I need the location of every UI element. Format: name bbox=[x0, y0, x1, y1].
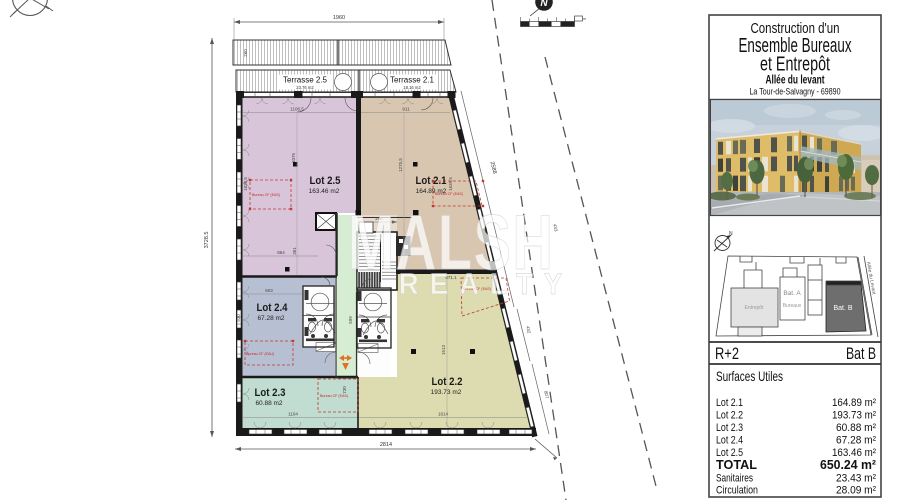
svg-text:1639,5: 1639,5 bbox=[448, 177, 453, 191]
svg-text:TOTAL: TOTAL bbox=[716, 457, 757, 472]
svg-text:1614: 1614 bbox=[438, 412, 449, 417]
svg-text:Lot 2.1: Lot 2.1 bbox=[416, 175, 447, 187]
svg-text:Bat. A: Bat. A bbox=[783, 290, 801, 297]
svg-text:193.73 m2: 193.73 m2 bbox=[431, 389, 462, 396]
svg-text:Lot 2.1: Lot 2.1 bbox=[716, 397, 743, 409]
svg-text:1275,5: 1275,5 bbox=[398, 158, 403, 172]
svg-text:1620,5: 1620,5 bbox=[243, 177, 248, 191]
svg-text:Lot 2.3: Lot 2.3 bbox=[255, 387, 286, 399]
svg-text:N: N bbox=[540, 0, 548, 9]
svg-text:Terrasse 2.1: Terrasse 2.1 bbox=[390, 76, 435, 85]
svg-text:Bureaux: Bureaux bbox=[783, 303, 802, 309]
svg-text:1513: 1513 bbox=[441, 344, 446, 355]
svg-text:1075: 1075 bbox=[291, 152, 296, 163]
svg-text:Entrepôt: Entrepôt bbox=[745, 305, 765, 311]
svg-text:Bat. B: Bat. B bbox=[833, 305, 852, 312]
svg-text:Lot 2.2: Lot 2.2 bbox=[432, 376, 463, 388]
svg-text:930: 930 bbox=[236, 314, 241, 322]
svg-text:Bureau CF (EAS): Bureau CF (EAS) bbox=[320, 394, 348, 398]
svg-text:Surfaces Utiles: Surfaces Utiles bbox=[716, 368, 783, 384]
svg-text:730: 730 bbox=[342, 386, 347, 394]
svg-text:2814: 2814 bbox=[380, 442, 392, 448]
svg-text:Bat B: Bat B bbox=[846, 345, 876, 363]
svg-text:28.09 m²: 28.09 m² bbox=[836, 485, 876, 497]
svg-text:164.89 m²: 164.89 m² bbox=[832, 397, 876, 409]
svg-text:Bureau CF (EAU): Bureau CF (EAU) bbox=[246, 352, 274, 356]
svg-text:60.88 m2: 60.88 m2 bbox=[255, 400, 282, 407]
svg-text:650.24 m²: 650.24 m² bbox=[820, 457, 877, 472]
svg-text:Lot 2.3: Lot 2.3 bbox=[716, 422, 743, 434]
svg-text:Lot 2.4: Lot 2.4 bbox=[716, 435, 743, 447]
svg-text:3728.5: 3728.5 bbox=[204, 232, 210, 249]
svg-text:60.88 m²: 60.88 m² bbox=[836, 422, 876, 434]
svg-text:193.73 m²: 193.73 m² bbox=[832, 410, 876, 422]
svg-text:1960: 1960 bbox=[333, 15, 345, 21]
svg-text:361: 361 bbox=[292, 247, 297, 255]
svg-text:Lot 2.5: Lot 2.5 bbox=[310, 175, 341, 187]
svg-text:164.89 m2: 164.89 m2 bbox=[416, 188, 447, 195]
svg-text:67.28 m2: 67.28 m2 bbox=[257, 315, 284, 322]
svg-text:18.16 m2: 18.16 m2 bbox=[403, 85, 421, 90]
svg-text:m: m bbox=[583, 17, 586, 21]
svg-text:911: 911 bbox=[402, 107, 410, 112]
svg-text:Bureau CF (EAS): Bureau CF (EAS) bbox=[252, 193, 280, 197]
svg-text:23.76 m2: 23.76 m2 bbox=[296, 85, 314, 90]
svg-text:163.46 m2: 163.46 m2 bbox=[309, 188, 340, 195]
svg-text:N: N bbox=[729, 231, 733, 237]
svg-text:67.28 m²: 67.28 m² bbox=[836, 435, 876, 447]
svg-text:La Tour-de-Salvagny - 69890: La Tour-de-Salvagny - 69890 bbox=[750, 87, 841, 98]
svg-text:1104: 1104 bbox=[288, 412, 298, 417]
svg-text:23.43 m²: 23.43 m² bbox=[836, 473, 876, 485]
svg-text:et Entrepôt: et Entrepôt bbox=[760, 54, 830, 76]
svg-text:864: 864 bbox=[277, 250, 285, 255]
svg-text:599: 599 bbox=[348, 316, 353, 324]
svg-text:1106,5: 1106,5 bbox=[290, 107, 304, 112]
svg-text:REALTY: REALTY bbox=[399, 268, 574, 301]
svg-text:Circulation: Circulation bbox=[716, 485, 758, 497]
svg-text:Allée du levant: Allée du levant bbox=[766, 75, 825, 87]
svg-text:603: 603 bbox=[265, 288, 273, 293]
svg-text:Terrasse 2.5: Terrasse 2.5 bbox=[283, 76, 328, 85]
svg-text:Sanitaires: Sanitaires bbox=[716, 473, 753, 485]
svg-text:Lot 2.4: Lot 2.4 bbox=[257, 302, 289, 314]
svg-text:Lot 2.2: Lot 2.2 bbox=[716, 410, 743, 422]
svg-text:260: 260 bbox=[243, 49, 248, 57]
svg-text:R+2: R+2 bbox=[715, 345, 739, 363]
